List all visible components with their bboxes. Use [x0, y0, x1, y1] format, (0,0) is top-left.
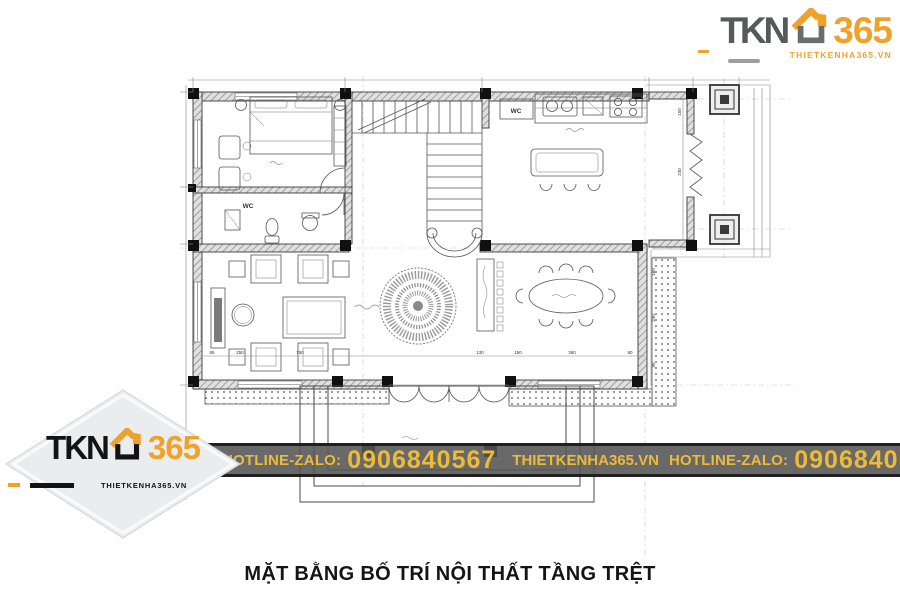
svg-text:150: 150	[514, 350, 522, 355]
hotline-phone: 0906840567	[794, 446, 900, 475]
svg-text:250: 250	[236, 350, 244, 355]
diamond-shape	[4, 388, 242, 540]
svg-text:360: 360	[568, 350, 576, 355]
brand-wordmark-365: 365	[148, 434, 200, 462]
svg-text:90: 90	[651, 362, 656, 368]
floor-medallion	[380, 268, 456, 344]
bedroom	[219, 97, 346, 193]
house-icon	[109, 428, 147, 462]
floor-plan-drawing: WC	[175, 70, 800, 570]
side-porch-steps	[646, 85, 770, 257]
hotline-label: HOTLINE-ZALO:	[669, 452, 788, 469]
dimension-lines	[180, 77, 770, 500]
brand-wordmark-tkn: TKN	[720, 15, 787, 46]
watermark-diamond-logo: TKN 365 THIETKENHA365.VN	[4, 388, 242, 540]
promo-banner: HOTLINE-ZALO: 0906840567 THIETKENHA365.V…	[186, 443, 900, 477]
logo-underline-bar	[728, 59, 760, 63]
dimension-labels: 85 250 750 130 150 360 90 160 240 90 150…	[209, 108, 682, 368]
brand-wordmark-365: 365	[833, 15, 892, 46]
brand-website: THIETKENHA365.VN	[690, 50, 892, 60]
svg-text:240: 240	[651, 314, 656, 322]
walls	[193, 92, 694, 389]
house-icon	[791, 8, 833, 46]
folding-door	[690, 134, 702, 196]
svg-text:150: 150	[677, 108, 682, 116]
brand-website: THIETKENHA365.VN	[101, 481, 187, 490]
page: WC	[0, 0, 900, 603]
stairs	[352, 99, 482, 257]
svg-text:85: 85	[209, 350, 215, 355]
plan-title: MẶT BẰNG BỐ TRÍ NỘI THẤT TẦNG TRỆT	[0, 563, 900, 586]
logo-underline-bar	[30, 483, 74, 488]
svg-text:160: 160	[651, 268, 656, 276]
brand-wordmark-tkn: TKN	[46, 434, 108, 462]
logo-accent-dash	[698, 50, 709, 53]
closet-wc: WC	[500, 99, 533, 119]
hotline-phone: 0906840567	[347, 446, 496, 475]
svg-text:750: 750	[296, 350, 304, 355]
svg-text:WC: WC	[243, 203, 254, 210]
entrance-door	[389, 385, 509, 440]
windows	[194, 93, 600, 388]
logo-accent-dash	[8, 483, 20, 487]
kitchen-island	[531, 149, 603, 191]
svg-text:240: 240	[677, 168, 682, 176]
console-cabinet	[477, 259, 503, 331]
svg-text:90: 90	[627, 350, 633, 355]
decorative-columns	[710, 85, 739, 244]
svg-text:130: 130	[476, 350, 484, 355]
bathroom: WC	[225, 193, 344, 243]
website-label: THIETKENHA365.VN	[512, 452, 659, 469]
top-brand-logo: TKN 365 THIETKENHA365.VN	[690, 8, 892, 70]
dining-set	[516, 264, 615, 328]
svg-text:WC: WC	[511, 108, 522, 115]
